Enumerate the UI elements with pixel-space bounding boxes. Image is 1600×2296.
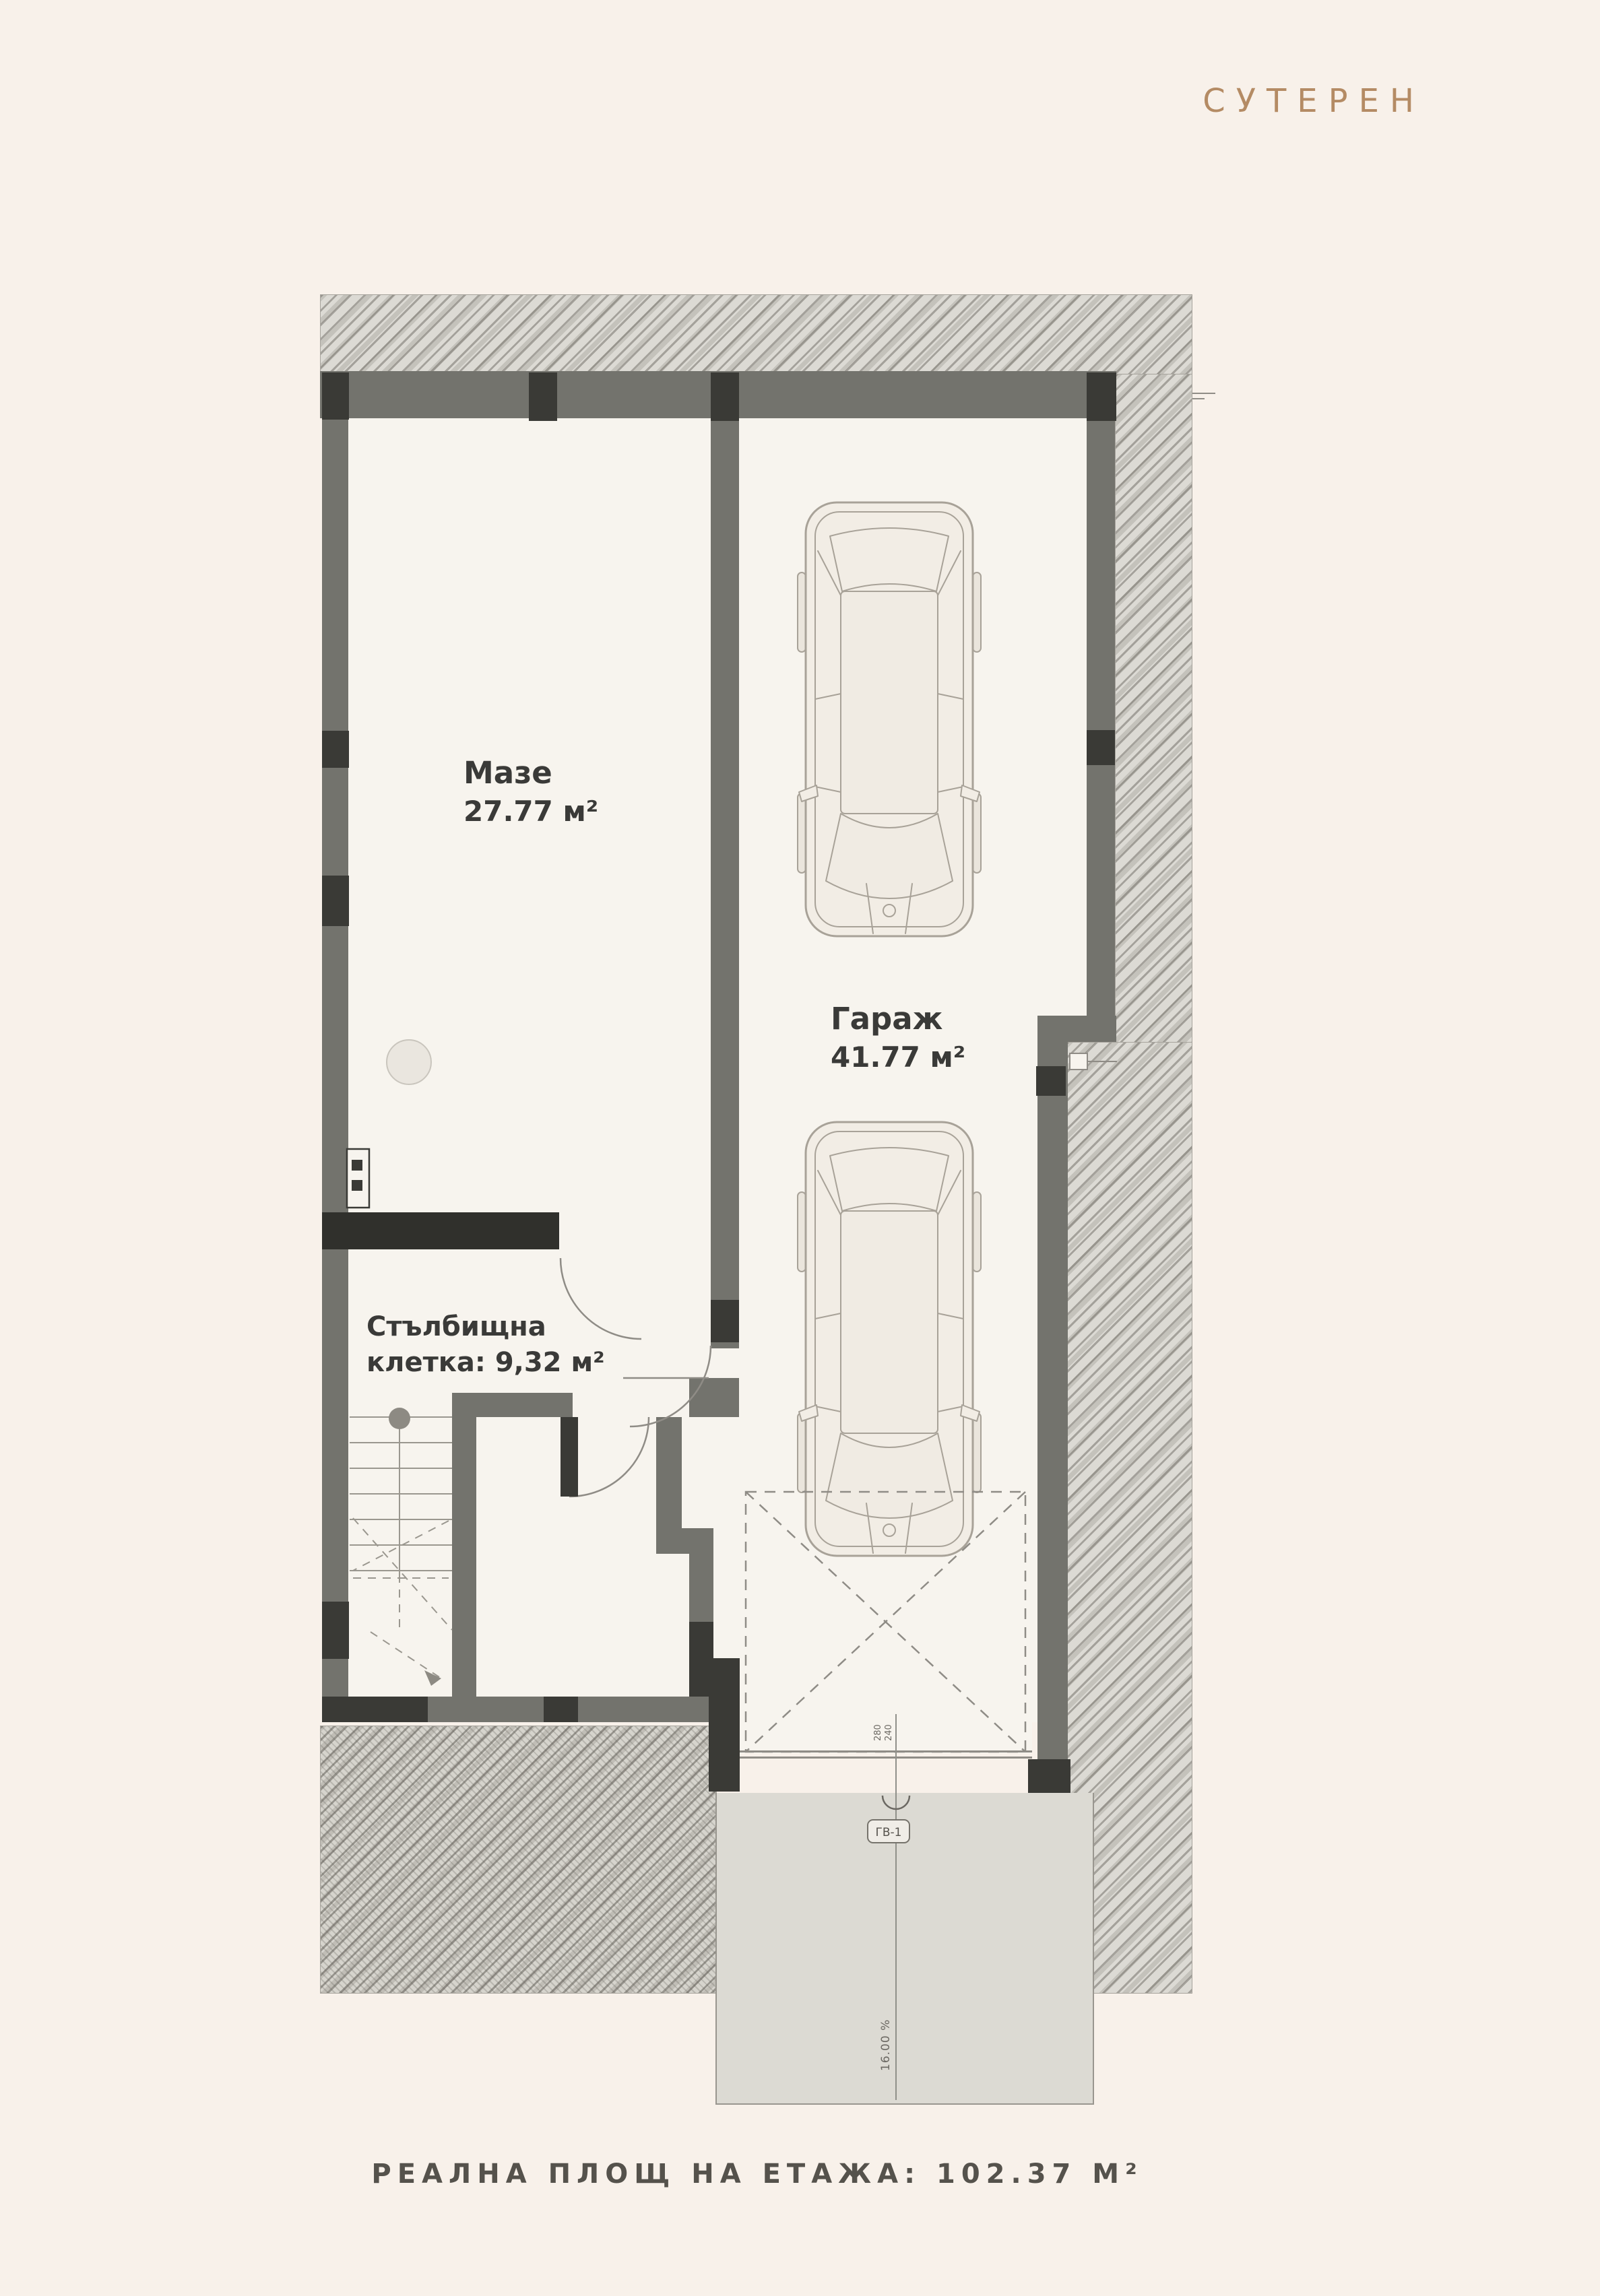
room-label-staircase: Стълбищна клетка: 9,32 м² [366,1309,605,1381]
wall-stairroom-top [452,1393,573,1417]
wall-right-upper [1087,372,1115,1042]
wall-left [322,372,348,1722]
room-label-maze: Мазе 27.77 м² [463,753,598,830]
wall-stairroom-left [452,1417,476,1697]
column-block [322,1602,349,1659]
column-block [1087,372,1116,421]
garage-door-jamb-right [1028,1759,1070,1793]
column-block [529,372,557,421]
driveway [715,1793,1094,2105]
survey-tick [1192,393,1215,399]
garage-threshold [740,1750,1032,1759]
floor-plan-page: СУТЕРЕН [0,0,1600,2296]
hatch-band-right-upper [1115,374,1192,1043]
garage-door-bay [740,1722,1032,1753]
column-block [711,372,739,421]
column-block [1087,730,1115,765]
room-label-garage: Гараж 41.77 м² [831,999,965,1076]
wall-middle-dark [322,1212,559,1249]
column-block [322,876,349,926]
column-block [544,1697,578,1722]
wall-right-step [1037,1016,1116,1042]
floor-area-summary: РЕАЛНА ПЛОЩ НА ЕТАЖА: 102.37 М² [0,2159,1514,2190]
room-name: Стълбищна [366,1309,605,1345]
column-block [711,1300,739,1342]
column-block [322,1697,428,1722]
room-name: Гараж [831,999,965,1039]
wall-stairroom-jog [656,1528,713,1554]
hatch-band-top [320,294,1192,375]
wall-right-lower [1037,1042,1068,1759]
column-block [322,372,349,420]
garage-door-jamb-left [709,1658,740,1792]
wall-stairroom-right-lower [689,1554,713,1622]
wall-stairroom-jamb [689,1378,739,1417]
hatch-block-bottom-left [320,1726,717,1994]
wall-divider [711,372,739,1348]
room-name: Мазе [463,753,598,793]
room-area: клетка: 9,32 м² [366,1345,605,1381]
room-area: 27.77 м² [463,793,598,830]
page-title: СУТЕРЕН [1203,82,1425,120]
room-area: 41.77 м² [831,1039,965,1076]
column-block [322,731,349,768]
column-block [1036,1066,1066,1096]
